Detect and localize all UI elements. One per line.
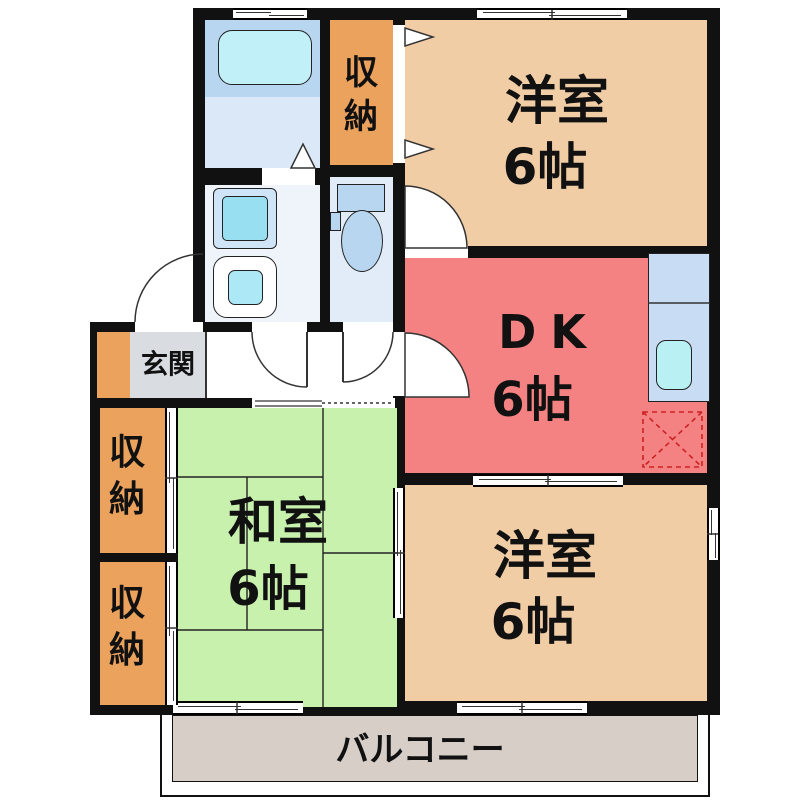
label-storage-top: 収納 <box>343 51 379 139</box>
opening-closet-top <box>393 25 405 163</box>
tatami-room-floor <box>178 408 397 707</box>
label-genkan: 玄関 <box>141 352 195 379</box>
label-tatami-name: 和室 <box>228 497 328 547</box>
window-western-top <box>477 8 627 20</box>
label-balcony: バルコニー <box>335 733 504 767</box>
closet-door-storage-mid <box>165 408 178 553</box>
washbasin-bowl <box>222 196 268 241</box>
label-storage-low: 収納 <box>108 581 146 675</box>
label-storage-mid: 収納 <box>108 430 146 524</box>
opening-dk-western-top <box>405 246 468 258</box>
opening-toilet <box>343 322 393 332</box>
fusuma-tatami-western <box>393 488 405 618</box>
kitchen-sink-icon <box>656 340 692 390</box>
toilet-flush-handle <box>330 212 341 231</box>
label-dk-name: DK <box>498 309 600 355</box>
window-western-bottom-right <box>707 508 720 560</box>
label-western-top-size: 6帖 <box>503 142 588 192</box>
western-room-top-floor <box>405 20 707 246</box>
floor-plan: 洋室 6帖 DK 6帖 洋室 6帖 和室 6帖 収納 収納 収納 玄関 バルコニ… <box>0 0 800 800</box>
bathtub-icon <box>218 30 312 85</box>
window-western-balcony <box>457 701 587 715</box>
shoe-cabinet <box>97 332 130 398</box>
toilet-icon <box>341 210 383 272</box>
label-dk-size: 6帖 <box>491 376 572 424</box>
window-bathroom-top <box>233 8 307 20</box>
closet-door-storage-low <box>165 562 178 705</box>
label-western-top-name: 洋室 <box>505 76 609 128</box>
opening-entrance <box>135 322 203 332</box>
window-tatami-balcony <box>173 701 303 715</box>
hallway-floor <box>205 332 393 398</box>
label-western-bottom-size: 6帖 <box>491 597 576 647</box>
opening-bathroom <box>262 168 315 185</box>
opening-hall-tatami <box>252 398 395 408</box>
toilet-tank <box>337 184 385 212</box>
sliding-door-dk-western-bottom <box>473 474 623 487</box>
washing-machine-drum <box>228 270 263 305</box>
label-western-bottom-name: 洋室 <box>493 531 597 583</box>
opening-washroom <box>252 322 307 332</box>
opening-dk-entry <box>393 332 405 396</box>
label-tatami-size: 6帖 <box>227 565 308 613</box>
